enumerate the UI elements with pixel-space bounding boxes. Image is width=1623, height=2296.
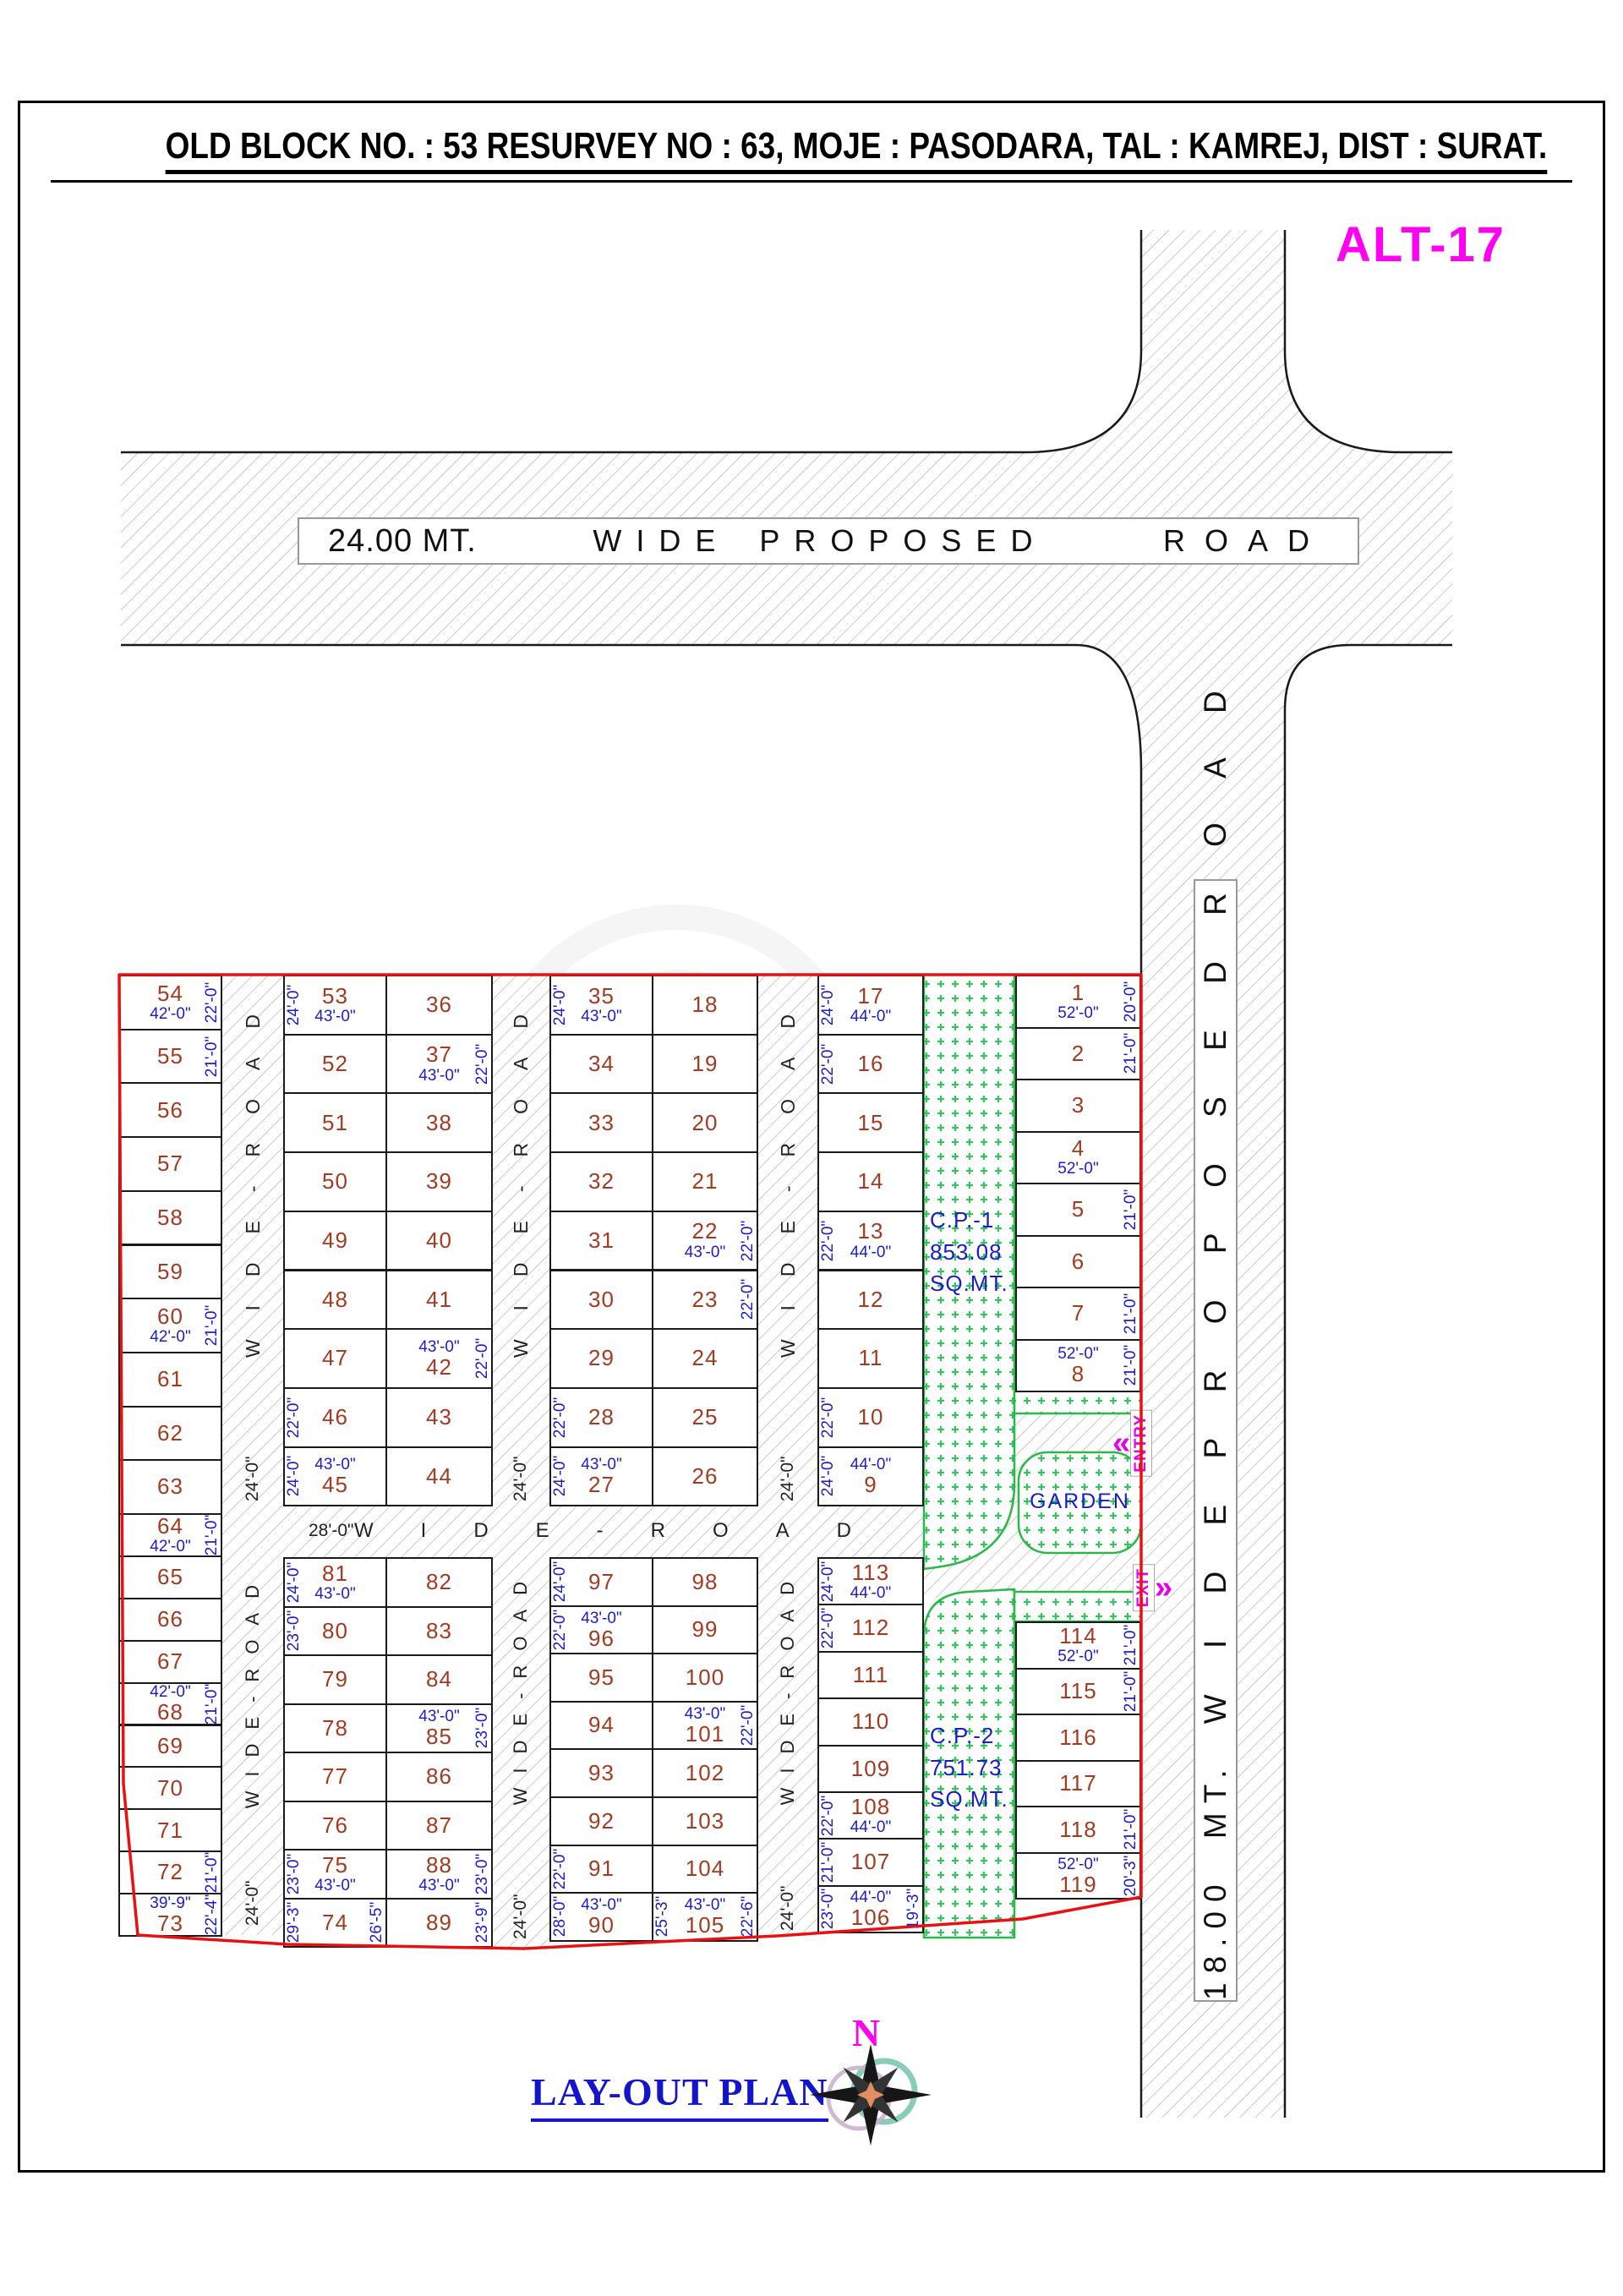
plot-34: 34 xyxy=(549,1034,653,1095)
plot-71: 71 xyxy=(118,1808,222,1852)
plot-dimension: 20'-3" xyxy=(1123,1856,1139,1896)
internal-road-1-label-lower: 24'-0" WIDE-ROAD xyxy=(240,1571,265,1926)
plot-49: 49 xyxy=(283,1211,387,1271)
plot-14: 14 xyxy=(817,1151,924,1212)
plot-dimension: 23'-0" xyxy=(820,1889,836,1929)
plot-79: 79 xyxy=(283,1654,387,1705)
plot-number: 111 xyxy=(853,1664,889,1686)
plot-number: 114 xyxy=(1059,1625,1096,1648)
plot-number: 99 xyxy=(692,1618,719,1641)
plot-number: 82 xyxy=(426,1571,452,1594)
plot-dimension: 26'-5" xyxy=(369,1902,385,1943)
plot-112: 11222'-0" xyxy=(817,1604,924,1652)
plot-number: 40 xyxy=(426,1229,452,1252)
top-road-label: 24.00 MT. WIDE PROPOSED ROAD xyxy=(298,517,1359,565)
plot-3: 3 xyxy=(1015,1079,1141,1133)
plot-dimension: 52'-0" xyxy=(1057,1648,1098,1665)
plot-90: 43'-0"9028'-0" xyxy=(549,1892,653,1942)
plot-69: 69 xyxy=(118,1725,222,1768)
plot-dimension: 39'-9" xyxy=(150,1895,190,1911)
plot-number: 109 xyxy=(851,1758,890,1780)
plot-number: 91 xyxy=(588,1857,615,1880)
plot-dimension: 22'-0" xyxy=(552,1610,568,1650)
plot-number: 31 xyxy=(588,1229,615,1252)
plot-96: 43'-0"9622'-0" xyxy=(549,1605,653,1655)
plot-102: 102 xyxy=(652,1748,758,1798)
plot-number: 76 xyxy=(322,1814,348,1837)
plot-dimension: 43'-0" xyxy=(581,1457,621,1473)
plot-number: 110 xyxy=(852,1710,889,1733)
plot-number: 7 xyxy=(1072,1302,1085,1325)
plot-dimension: 22'-4" xyxy=(204,1894,220,1935)
plot-number: 74 xyxy=(322,1911,348,1934)
plot-dimension: 21'-0" xyxy=(204,1036,220,1076)
plot-88: 8843'-0"23'-0" xyxy=(385,1849,493,1900)
plot-44: 44 xyxy=(385,1446,493,1507)
plot-number: 42 xyxy=(426,1356,452,1379)
plot-57: 57 xyxy=(118,1136,222,1192)
plot-dimension: 43'-0" xyxy=(581,1897,621,1913)
plot-109: 109 xyxy=(817,1745,924,1793)
plot-number: 27 xyxy=(588,1473,615,1496)
plot-number: 92 xyxy=(588,1810,615,1833)
plot-35: 3543'-0"24'-0" xyxy=(549,975,653,1036)
plot-31: 31 xyxy=(549,1211,653,1271)
exit-gate: EXIT » xyxy=(1133,1564,1172,1611)
plot-number: 69 xyxy=(157,1735,183,1758)
plot-85: 43'-0"8523'-0" xyxy=(385,1703,493,1754)
plot-45: 43'-0"4524'-0" xyxy=(283,1446,387,1507)
garden-label: GARDEN xyxy=(1019,1490,1141,1514)
plot-58: 58 xyxy=(118,1190,222,1246)
internal-road-1-label: 24'-0" WIDE-ROAD xyxy=(240,986,265,1501)
plot-number: 64 xyxy=(157,1515,183,1538)
plot-110: 110 xyxy=(817,1697,924,1746)
plot-number: 98 xyxy=(692,1571,719,1594)
plot-number: 90 xyxy=(588,1914,615,1937)
plot-number: 11 xyxy=(859,1347,883,1369)
plot-number: 58 xyxy=(157,1206,183,1229)
plot-number: 8 xyxy=(1072,1363,1085,1386)
plot-number: 101 xyxy=(686,1723,724,1746)
plot-86: 86 xyxy=(385,1752,493,1802)
plot-dimension: 22'-0" xyxy=(740,1220,756,1260)
plot-number: 14 xyxy=(858,1170,884,1193)
plot-dimension: 21'-0" xyxy=(1123,1293,1139,1334)
plot-5: 521'-0" xyxy=(1015,1183,1141,1237)
plot-number: 25 xyxy=(692,1406,719,1429)
plot-number: 17 xyxy=(858,985,884,1008)
plot-108: 10844'-0"22'-0" xyxy=(817,1791,924,1840)
plot-number: 28 xyxy=(588,1406,615,1429)
plot-99: 99 xyxy=(652,1605,758,1655)
plot-dimension: 52'-0" xyxy=(1057,1161,1098,1177)
cp1-label: C.P.-1 853.08 SQ.MT. xyxy=(930,1205,1008,1300)
plot-number: 68 xyxy=(157,1701,183,1724)
plot-number: 93 xyxy=(588,1762,615,1785)
plot-66: 66 xyxy=(118,1598,222,1642)
plot-number: 33 xyxy=(588,1112,615,1134)
plot-107: 10721'-0" xyxy=(817,1838,924,1886)
plot-51: 51 xyxy=(283,1092,387,1153)
plot-dimension: 43'-0" xyxy=(314,1586,355,1602)
plot-12: 12 xyxy=(817,1270,924,1331)
plot-number: 23 xyxy=(692,1288,719,1311)
plot-29: 29 xyxy=(549,1328,653,1389)
internal-road-3-label-lower: 24'-0" WIDE-ROAD xyxy=(775,1567,801,1931)
layout-plan-page: OLD BLOCK NO. : 53 RESURVEY NO : 63, MOJ… xyxy=(0,0,1623,2296)
plot-116: 116 xyxy=(1015,1714,1141,1762)
plot-dimension: 22'-0" xyxy=(204,982,220,1023)
plot-1: 152'-0"20'-0" xyxy=(1015,975,1141,1029)
plot-87: 87 xyxy=(385,1801,493,1851)
plot-15: 15 xyxy=(817,1092,924,1153)
plot-dimension: 21'-0" xyxy=(1123,1189,1139,1230)
plot-94: 94 xyxy=(549,1701,653,1751)
plot-105: 43'-0"10525'-3"22'-6" xyxy=(652,1892,758,1942)
plot-number: 89 xyxy=(426,1911,452,1934)
plot-number: 66 xyxy=(157,1608,183,1631)
plot-number: 81 xyxy=(322,1562,348,1585)
plot-number: 112 xyxy=(852,1616,889,1639)
plot-dimension: 29'-3" xyxy=(286,1902,302,1943)
plot-number: 48 xyxy=(322,1288,348,1311)
plot-24: 24 xyxy=(652,1328,758,1389)
plot-77: 77 xyxy=(283,1752,387,1802)
plot-61: 61 xyxy=(118,1352,222,1408)
plot-number: 85 xyxy=(426,1725,452,1748)
plot-8: 52'-0"821'-0" xyxy=(1015,1339,1141,1393)
plot-number: 43 xyxy=(426,1406,452,1429)
plot-33: 33 xyxy=(549,1092,653,1153)
plot-number: 26 xyxy=(692,1465,719,1488)
plot-dimension: 43'-0" xyxy=(418,1708,459,1725)
plot-number: 73 xyxy=(157,1912,183,1935)
plot-number: 54 xyxy=(157,982,183,1005)
plot-21: 21 xyxy=(652,1151,758,1212)
plot-97: 9724'-0" xyxy=(549,1557,653,1607)
plot-63: 63 xyxy=(118,1459,222,1515)
plot-dimension: 22'-0" xyxy=(820,1795,836,1835)
plot-dimension: 22'-0" xyxy=(820,1220,836,1260)
plot-dimension: 43'-0" xyxy=(314,1457,355,1473)
plot-number: 60 xyxy=(157,1305,183,1328)
north-label: N xyxy=(852,2010,880,2055)
plot-number: 21 xyxy=(692,1170,719,1193)
top-road-name2: ROAD xyxy=(1163,523,1329,559)
plot-number: 57 xyxy=(157,1152,183,1175)
plot-18: 18 xyxy=(652,975,758,1036)
plot-95: 95 xyxy=(549,1653,653,1703)
plot-115: 11521'-0" xyxy=(1015,1668,1141,1716)
plot-dimension: 24'-0" xyxy=(552,1456,568,1496)
top-road-width: 24.00 MT. xyxy=(328,523,477,560)
plot-number: 15 xyxy=(858,1112,884,1134)
plot-113: 11344'-0"24'-0" xyxy=(817,1557,924,1605)
plot-43: 43 xyxy=(385,1387,493,1448)
plot-82: 82 xyxy=(385,1557,493,1608)
plot-60: 6042'-0"21'-0" xyxy=(118,1298,222,1353)
plot-dimension: 44'-0" xyxy=(850,1457,891,1473)
plot-number: 59 xyxy=(157,1260,183,1283)
right-road-label: 18.00 MT. W I D E P R O P O S E D R O A … xyxy=(1194,879,1238,2002)
plot-number: 19 xyxy=(692,1052,719,1075)
plot-dimension: 22'-0" xyxy=(474,1338,490,1379)
plot-dimension: 52'-0" xyxy=(1057,1005,1098,1021)
plot-56: 56 xyxy=(118,1082,222,1138)
plot-28: 2822'-0" xyxy=(549,1387,653,1448)
plot-7: 721'-0" xyxy=(1015,1287,1141,1341)
plot-number: 100 xyxy=(686,1666,724,1689)
plot-64: 6442'-0"21'-0" xyxy=(118,1513,222,1557)
plot-78: 78 xyxy=(283,1703,387,1754)
plot-19: 19 xyxy=(652,1034,758,1095)
plot-number: 61 xyxy=(157,1368,183,1391)
plot-number: 86 xyxy=(426,1765,452,1788)
plot-number: 62 xyxy=(157,1422,183,1445)
plot-number: 75 xyxy=(322,1854,348,1877)
internal-road-2-label: 24'-0" WIDE-ROAD xyxy=(508,986,533,1501)
plot-number: 84 xyxy=(426,1668,452,1691)
plot-number: 115 xyxy=(1059,1680,1096,1703)
plot-32: 32 xyxy=(549,1151,653,1212)
plot-100: 100 xyxy=(652,1653,758,1703)
plot-91: 9122'-0" xyxy=(549,1845,653,1894)
plot-67: 67 xyxy=(118,1640,222,1684)
plot-number: 44 xyxy=(426,1465,452,1488)
plot-dimension: 25'-3" xyxy=(654,1896,670,1937)
plot-dimension: 28'-0" xyxy=(552,1896,568,1937)
plot-20: 20 xyxy=(652,1092,758,1153)
plot-13: 1344'-0"22'-0" xyxy=(817,1211,924,1271)
plot-70: 70 xyxy=(118,1766,222,1810)
plot-dimension: 22'-0" xyxy=(820,1608,836,1648)
entry-label: ENTRY xyxy=(1130,1410,1152,1477)
plot-111: 111 xyxy=(817,1651,924,1699)
alt-number-badge: ALT-17 xyxy=(1336,216,1506,273)
title-block: OLD BLOCK NO. : 53 RESURVEY NO : 63, MOJ… xyxy=(34,125,1589,183)
plot-23: 2322'-0" xyxy=(652,1270,758,1331)
plot-40: 40 xyxy=(385,1211,493,1271)
plot-number: 38 xyxy=(426,1112,452,1134)
plot-dimension: 24'-0" xyxy=(552,985,568,1025)
plot-dimension: 42'-0" xyxy=(150,1329,190,1345)
title-underline xyxy=(51,180,1572,183)
plot-68: 42'-0"6821'-0" xyxy=(118,1682,222,1726)
plot-dimension: 21'-0" xyxy=(1123,1671,1139,1712)
plot-62: 62 xyxy=(118,1406,222,1462)
plot-dimension: 22'-6" xyxy=(740,1896,756,1937)
plot-dimension: 21'-0" xyxy=(820,1842,836,1883)
plot-number: 78 xyxy=(322,1717,348,1740)
plot-dimension: 22'-0" xyxy=(286,1397,302,1438)
plot-26: 26 xyxy=(652,1446,758,1507)
internal-road-3-label: 24'-0" WIDE-ROAD xyxy=(775,986,801,1501)
plot-dimension: 43'-0" xyxy=(314,1878,355,1894)
plot-dimension: 43'-0" xyxy=(685,1244,725,1260)
plot-80: 8023'-0" xyxy=(283,1606,387,1657)
plot-number: 77 xyxy=(322,1765,348,1788)
plot-89: 8923'-9" xyxy=(385,1898,493,1949)
plot-number: 51 xyxy=(322,1112,348,1134)
plot-number: 104 xyxy=(686,1857,724,1880)
plot-93: 93 xyxy=(549,1748,653,1798)
page-title: OLD BLOCK NO. : 53 RESURVEY NO : 63, MOJ… xyxy=(166,125,1548,174)
exit-label: EXIT xyxy=(1133,1564,1155,1611)
plot-65: 65 xyxy=(118,1555,222,1599)
plot-number: 94 xyxy=(588,1714,615,1736)
plot-number: 4 xyxy=(1072,1137,1085,1160)
plot-dimension: 43'-0" xyxy=(685,1706,725,1722)
plot-dimension: 22'-0" xyxy=(552,1849,568,1889)
plot-number: 16 xyxy=(858,1052,884,1075)
internal-road-2-label-lower: 24'-0" WIDE-ROAD xyxy=(508,1567,533,1939)
entry-arrow-icon: « xyxy=(1112,1430,1130,1456)
plot-dimension: 44'-0" xyxy=(850,1009,891,1025)
plot-dimension: 43'-0" xyxy=(685,1897,725,1913)
plot-number: 117 xyxy=(1059,1772,1096,1795)
plot-number: 53 xyxy=(322,985,348,1008)
plot-number: 18 xyxy=(692,993,719,1016)
plot-76: 76 xyxy=(283,1801,387,1851)
plot-number: 2 xyxy=(1072,1042,1085,1065)
plot-92: 92 xyxy=(549,1796,653,1846)
plot-number: 22 xyxy=(692,1220,719,1243)
plot-4: 452'-0" xyxy=(1015,1131,1141,1185)
plot-number: 83 xyxy=(426,1620,452,1643)
plot-114: 11452'-0"21'-0" xyxy=(1015,1621,1141,1670)
plot-number: 30 xyxy=(588,1288,615,1311)
plot-dimension: 21'-0" xyxy=(1123,1809,1139,1850)
plot-dimension: 43'-0" xyxy=(418,1878,459,1894)
plot-number: 97 xyxy=(588,1571,615,1594)
plot-number: 12 xyxy=(858,1288,884,1311)
plot-dimension: 22'-0" xyxy=(474,1043,490,1084)
plot-dimension: 21'-0" xyxy=(204,1852,220,1893)
plot-72: 7221'-0" xyxy=(118,1850,222,1894)
plot-dimension: 22'-0" xyxy=(820,1397,836,1438)
plot-dimension: 24'-0" xyxy=(820,1561,836,1601)
plot-number: 46 xyxy=(322,1406,348,1429)
plot-dimension: 23'-0" xyxy=(474,1854,490,1894)
plot-dimension: 21'-0" xyxy=(204,1305,220,1346)
plot-98: 98 xyxy=(652,1557,758,1607)
plot-number: 116 xyxy=(1059,1726,1096,1749)
plot-52: 52 xyxy=(283,1034,387,1095)
plot-number: 32 xyxy=(588,1170,615,1193)
plot-number: 29 xyxy=(588,1347,615,1369)
plot-dimension: 52'-0" xyxy=(1057,1856,1098,1872)
plot-101: 43'-0"10122'-0" xyxy=(652,1701,758,1751)
plot-dimension: 23'-0" xyxy=(286,1610,302,1651)
plot-number: 5 xyxy=(1072,1198,1085,1221)
plot-number: 71 xyxy=(157,1819,183,1842)
plot-37: 3743'-0"22'-0" xyxy=(385,1034,493,1095)
plot-81: 8143'-0"24'-0" xyxy=(283,1557,387,1608)
plot-number: 103 xyxy=(686,1810,724,1833)
plot-dimension: 24'-0" xyxy=(286,1562,302,1603)
plot-38: 38 xyxy=(385,1092,493,1153)
plot-117: 117 xyxy=(1015,1760,1141,1808)
plot-dimension: 42'-0" xyxy=(150,1539,190,1555)
plot-104: 104 xyxy=(652,1845,758,1894)
plot-dimension: 24'-0" xyxy=(820,985,836,1025)
plot-number: 79 xyxy=(322,1668,348,1691)
plot-number: 108 xyxy=(851,1796,890,1818)
plot-dimension: 43'-0" xyxy=(418,1068,459,1084)
plot-dimension: 24'-0" xyxy=(286,985,302,1025)
plot-42: 43'-0"4222'-0" xyxy=(385,1328,493,1389)
plot-106: 44'-0"10623'-0"19'-3" xyxy=(817,1885,924,1933)
plot-73: 39'-9"7322'-4" xyxy=(118,1893,222,1937)
plot-dimension: 19'-3" xyxy=(905,1889,921,1929)
plot-59: 59 xyxy=(118,1244,222,1300)
plot-number: 65 xyxy=(157,1566,183,1588)
plot-75: 7543'-0"23'-0" xyxy=(283,1849,387,1900)
plot-84: 84 xyxy=(385,1654,493,1705)
plot-dimension: 21'-0" xyxy=(204,1515,220,1555)
plot-46: 4622'-0" xyxy=(283,1387,387,1448)
plot-number: 107 xyxy=(851,1850,890,1873)
plot-dimension: 44'-0" xyxy=(850,1244,891,1260)
plot-number: 63 xyxy=(157,1475,183,1498)
middle-road-label: 28'-0" WIDE-ROAD xyxy=(285,1508,922,1554)
plot-dimension: 22'-0" xyxy=(820,1043,836,1084)
exit-arrow-icon: » xyxy=(1155,1575,1172,1600)
plot-number: 52 xyxy=(322,1052,348,1075)
plot-number: 13 xyxy=(858,1220,884,1243)
plot-103: 103 xyxy=(652,1796,758,1846)
plot-number: 36 xyxy=(426,993,452,1016)
plot-number: 70 xyxy=(157,1777,183,1800)
plot-39: 39 xyxy=(385,1151,493,1212)
plot-dimension: 21'-0" xyxy=(1123,1345,1139,1386)
entry-gate: « ENTRY xyxy=(1112,1410,1152,1477)
plot-dimension: 44'-0" xyxy=(850,1819,891,1835)
plot-number: 10 xyxy=(858,1406,884,1429)
plot-number: 119 xyxy=(1059,1873,1096,1896)
plot-number: 50 xyxy=(322,1170,348,1193)
plot-dimension: 44'-0" xyxy=(850,1889,891,1905)
top-road-name: WIDE PROPOSED xyxy=(593,523,1046,559)
plan-title: LAY-OUT PLAN xyxy=(531,2069,828,2122)
plot-dimension: 43'-0" xyxy=(581,1610,621,1626)
plot-118: 11821'-0" xyxy=(1015,1806,1141,1854)
plot-number: 34 xyxy=(588,1052,615,1075)
plot-number: 96 xyxy=(588,1627,615,1650)
plot-number: 20 xyxy=(692,1112,719,1134)
plot-17: 1744'-0"24'-0" xyxy=(817,975,924,1036)
plot-30: 30 xyxy=(549,1270,653,1331)
plot-number: 113 xyxy=(852,1561,889,1584)
plot-dimension: 23'-0" xyxy=(474,1708,490,1748)
plot-dimension: 21'-0" xyxy=(1123,1625,1139,1665)
plot-36: 36 xyxy=(385,975,493,1036)
plot-number: 39 xyxy=(426,1170,452,1193)
plot-22: 2243'-0"22'-0" xyxy=(652,1211,758,1271)
plot-number: 45 xyxy=(322,1473,348,1496)
plot-dimension: 22'-0" xyxy=(740,1279,756,1320)
plot-number: 41 xyxy=(426,1288,452,1311)
plot-27: 43'-0"2724'-0" xyxy=(549,1446,653,1507)
plot-number: 49 xyxy=(322,1229,348,1252)
plot-number: 87 xyxy=(426,1814,452,1837)
plot-dimension: 23'-0" xyxy=(286,1854,302,1894)
plot-dimension: 44'-0" xyxy=(850,1585,891,1601)
plot-dimension: 24'-0" xyxy=(820,1456,836,1496)
plot-50: 50 xyxy=(283,1151,387,1212)
cp2-label: C.P.-2 751.73 SQ.MT. xyxy=(930,1720,1008,1816)
